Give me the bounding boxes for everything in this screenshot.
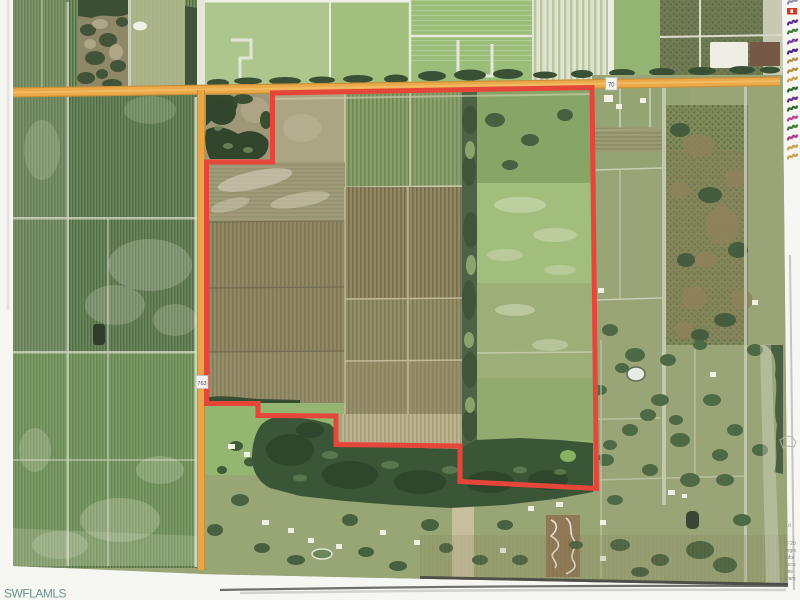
svg-text:regis: regis xyxy=(785,548,796,554)
svg-text:© 20: © 20 xyxy=(785,540,796,547)
svg-text:SWFLAMLS: SWFLAMLS xyxy=(4,587,67,600)
svg-text:infor: infor xyxy=(785,555,795,561)
svg-text:Dam: Dam xyxy=(785,576,796,582)
svg-text:d: d xyxy=(788,523,791,529)
svg-text:this: this xyxy=(785,569,793,575)
svg-text:accu: accu xyxy=(785,562,796,568)
